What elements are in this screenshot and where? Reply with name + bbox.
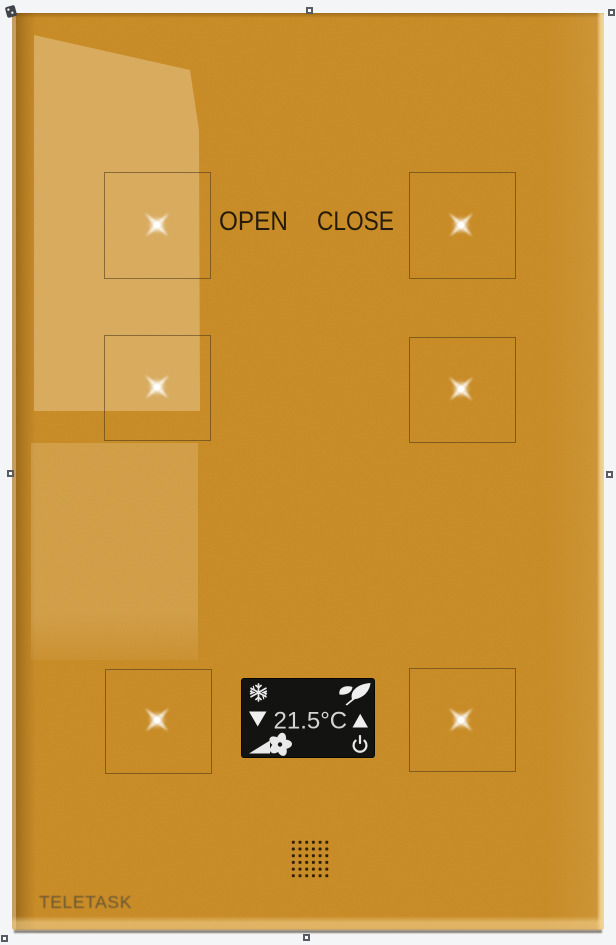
- svg-text:21.5°C: 21.5°C: [274, 707, 348, 734]
